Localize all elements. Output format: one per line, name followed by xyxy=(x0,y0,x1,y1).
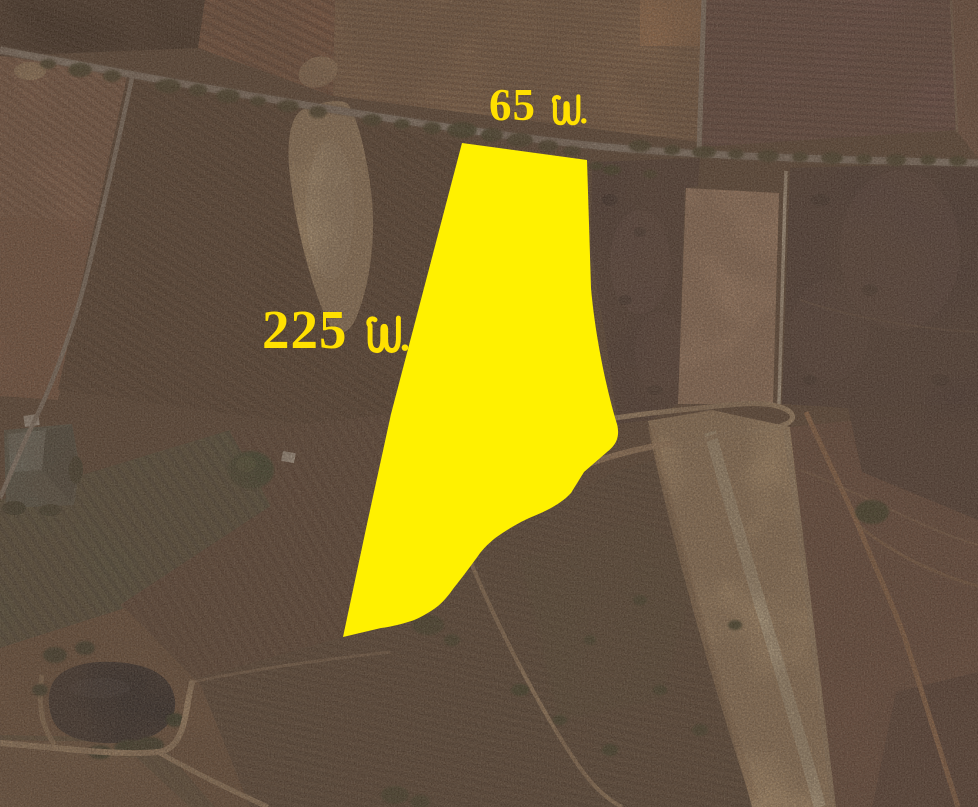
thai-meter-unit-glyph xyxy=(363,314,410,355)
frontage-dimension-label: 65 xyxy=(489,83,588,128)
thai-meter-unit-glyph xyxy=(549,93,588,127)
depth-number: 225 xyxy=(262,302,348,357)
frontage-number: 65 xyxy=(489,83,536,128)
depth-dimension-label: 225 xyxy=(262,302,410,357)
satellite-map-image: 65 225 xyxy=(0,0,978,807)
